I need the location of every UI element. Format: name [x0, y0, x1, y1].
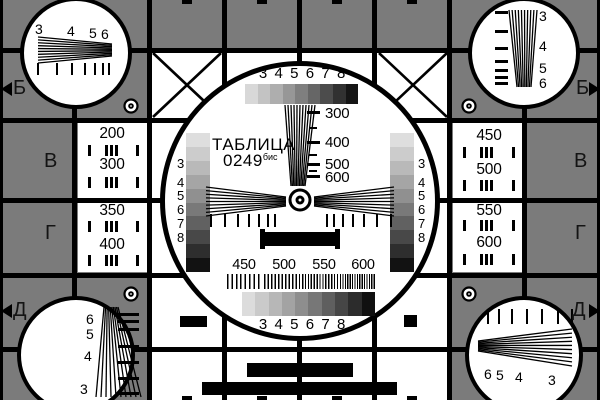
row-label-left-d: Д — [13, 300, 27, 320]
cell-value: 600 — [471, 235, 507, 251]
br-num: 4 — [515, 370, 523, 384]
row-label-right-v: В — [574, 151, 587, 171]
bullseye-target — [121, 96, 141, 116]
row-label-right-b: Б — [576, 78, 589, 98]
row-label-right-d: Д — [572, 300, 586, 320]
wedge-label-300: 300 — [325, 106, 349, 121]
left-horizontal-wedge — [202, 183, 290, 219]
edge-glyph-fragment — [257, 396, 267, 400]
bullseye-target — [459, 284, 479, 304]
left-strip-num: 8 — [168, 231, 184, 244]
cell-value: 450 — [471, 128, 507, 144]
right-strip-num: 5 — [418, 189, 425, 202]
right-strip-num: 3 — [418, 157, 425, 170]
left-strip-num: 3 — [168, 157, 184, 170]
bl-wedge — [92, 303, 146, 399]
cell-value: 500 — [471, 162, 507, 178]
frequency-burst-550 — [302, 274, 338, 289]
cell-value: 300 — [94, 157, 130, 173]
black-bar-cap-left — [260, 229, 265, 249]
bottom-scale-label-450: 450 — [230, 258, 258, 273]
tr-num: 3 — [539, 9, 547, 23]
cell-value: 200 — [94, 126, 130, 142]
tr-num: 6 — [539, 76, 547, 90]
bl-num: 4 — [84, 349, 92, 363]
edge-glyph-fragment — [332, 396, 342, 400]
top-resolution-numbers: 3 4 5 6 7 8 — [250, 66, 354, 81]
tl-num: 4 — [67, 24, 75, 38]
edge-glyph-fragment — [257, 0, 267, 4]
arrow-right-icon — [589, 304, 600, 318]
tl-num: 6 — [101, 27, 109, 41]
cell-value: 400 — [94, 237, 130, 253]
bl-num: 6 — [86, 312, 94, 326]
frequency-burst-500 — [264, 274, 300, 289]
edge-glyph-fragment — [182, 0, 192, 4]
br-num: 5 — [496, 368, 504, 382]
cell-value: 350 — [94, 203, 130, 219]
row-label-left-g: Г — [45, 223, 56, 243]
wedge-label-400: 400 — [325, 135, 349, 150]
card-number-value: 0249 — [223, 151, 263, 170]
bottom-scale-label-550: 550 — [310, 258, 338, 273]
arrow-left-icon — [1, 304, 12, 318]
br-wedge — [474, 325, 576, 370]
arrow-right-icon — [589, 82, 600, 96]
bullseye-target — [459, 96, 479, 116]
right-strip-num: 6 — [418, 203, 425, 216]
edge-glyph-fragment — [182, 396, 192, 400]
black-reference-bar — [264, 232, 336, 246]
right-strip-num: 8 — [418, 231, 425, 244]
bottom-resolution-numbers: 3 4 5 6 7 8 — [250, 317, 354, 332]
card-number: 0249бис — [223, 151, 278, 171]
bullseye-target — [121, 284, 141, 304]
tv-test-card: 3 4 5 6 7 8 300 400 500 600 ТАБЛИЦА 0249… — [0, 0, 600, 400]
right-horizontal-wedge — [310, 183, 398, 219]
pocket-mark-left — [180, 316, 207, 327]
right-strip-num: 7 — [418, 217, 425, 230]
tl-num: 3 — [35, 22, 43, 36]
row-label-left-b: Б — [13, 78, 26, 98]
bottom-pulse-bar-wide — [202, 382, 397, 395]
bottom-pulse-bar-narrow — [247, 363, 353, 377]
row-label-left-v: В — [44, 151, 57, 171]
black-bar-cap-right — [335, 229, 340, 249]
left-strip-num: 5 — [168, 189, 184, 202]
edge-glyph-fragment — [407, 396, 417, 400]
card-number-suffix: бис — [263, 152, 278, 162]
frequency-burst-600 — [340, 274, 376, 289]
edge-glyph-fragment — [407, 0, 417, 4]
center-bullseye — [286, 186, 314, 214]
left-strip-num: 7 — [168, 217, 184, 230]
tr-wedge — [504, 6, 542, 92]
edge-glyph-fragment — [332, 0, 342, 4]
row-label-right-g: Г — [575, 223, 586, 243]
cell-value: 550 — [471, 203, 507, 219]
arrow-left-icon — [1, 82, 12, 96]
tr-num: 4 — [539, 39, 547, 53]
pocket-mark-right — [404, 315, 417, 327]
left-strip-num: 6 — [168, 203, 184, 216]
br-num: 6 — [484, 367, 492, 381]
br-num: 3 — [548, 373, 556, 387]
frequency-burst-450 — [227, 274, 262, 289]
bl-num: 5 — [86, 327, 94, 341]
tr-num: 5 — [539, 61, 547, 75]
bottom-scale-label-600: 600 — [349, 258, 377, 273]
bl-num: 3 — [80, 382, 88, 396]
grayscale-bottom-bar — [242, 292, 375, 316]
bottom-scale-label-500: 500 — [270, 258, 298, 273]
tl-num: 5 — [89, 26, 97, 40]
